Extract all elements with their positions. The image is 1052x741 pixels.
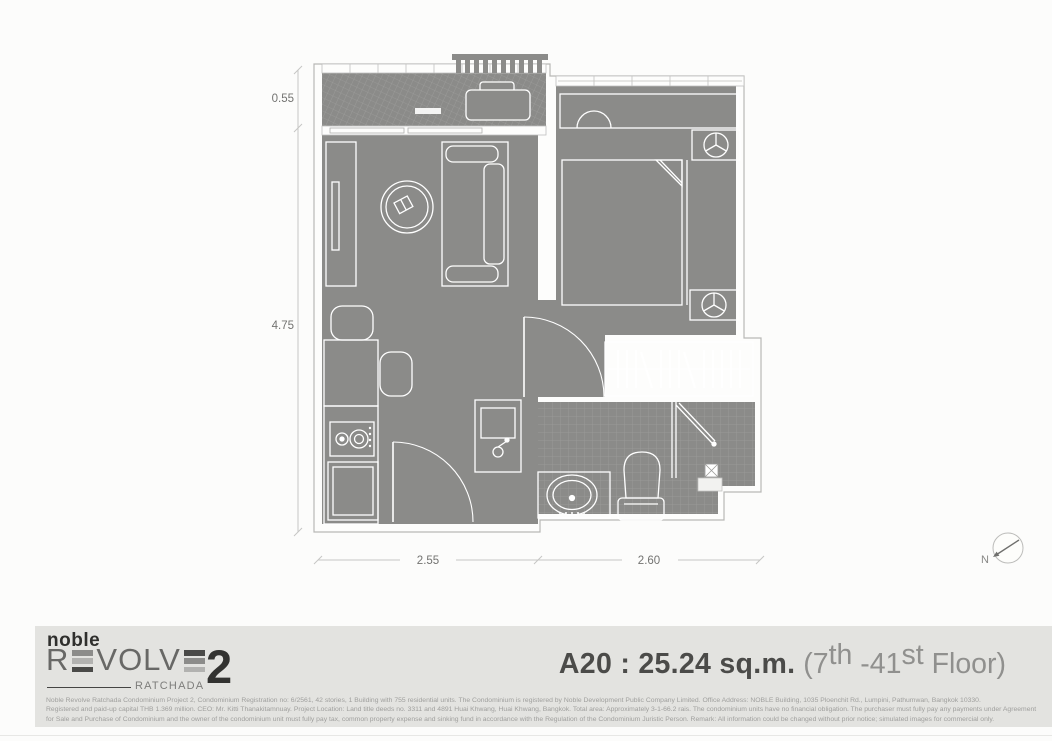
balcony-drain xyxy=(415,108,441,114)
stylized-e-icon xyxy=(72,650,93,672)
stylized-e-icon xyxy=(184,650,205,672)
unit-title-bold: A20 : 25.24 sq.m. xyxy=(559,648,795,681)
unit-title: A20 : 25.24 sq.m. (7th -41st Floor) xyxy=(559,648,1006,681)
logo-underline xyxy=(47,687,131,688)
unit-title-floor-close: Floor) xyxy=(924,648,1006,681)
dim-label-left-top: 0.55 xyxy=(272,93,294,105)
floor-drain xyxy=(705,464,718,477)
logo-subtitle: RATCHADA xyxy=(135,680,204,692)
disclaimer-text: Noble Revolve Ratchada Condominium Proje… xyxy=(46,696,1036,724)
disclaimer-line: Registered and paid-up capital THB 1.369… xyxy=(46,705,1036,714)
sliding-door xyxy=(322,126,546,135)
unit-title-sup-st: st xyxy=(901,639,923,672)
bedroom-floor xyxy=(556,84,736,335)
disclaimer-line: for Sale and Purchase of Condominium and… xyxy=(46,715,1036,724)
disclaimer-line: Noble Revolve Ratchada Condominium Proje… xyxy=(46,696,1036,705)
living-kitchen-floor xyxy=(322,134,538,524)
unit-title-floor-open: (7 xyxy=(795,648,828,681)
logo-letters-volv: VOLV xyxy=(96,647,180,673)
north-arrow-icon xyxy=(993,533,1023,563)
north-label: N xyxy=(981,554,989,566)
bottom-divider xyxy=(0,735,1052,736)
dim-label-bottom-right: 2.60 xyxy=(638,555,660,567)
bedroom-window xyxy=(556,76,744,86)
dimension-left xyxy=(294,66,302,536)
floorplan-drawing: 0.55 4.75 2.55 2.60 N xyxy=(0,0,1052,620)
logo-wordmark: R VOLV xyxy=(46,647,208,673)
unit-title-floor-dash: -41 xyxy=(852,648,901,681)
logo-letter-r: R xyxy=(46,647,69,673)
noble-revolve-logo: noble R VOLV 2 RATCHADA xyxy=(46,630,286,698)
dim-label-bottom-left: 2.55 xyxy=(417,555,439,567)
unit-title-sup-th: th xyxy=(829,639,853,672)
dimension-bottom xyxy=(314,556,764,564)
wardrobe-hangers xyxy=(605,342,753,396)
logo-number: 2 xyxy=(206,643,232,690)
dim-label-left-bottom: 4.75 xyxy=(272,320,294,332)
balcony xyxy=(322,72,546,126)
floorplan-sheet: 0.55 4.75 2.55 2.60 N noble R VOLV 2 xyxy=(0,0,1052,741)
shower-step xyxy=(698,478,722,491)
